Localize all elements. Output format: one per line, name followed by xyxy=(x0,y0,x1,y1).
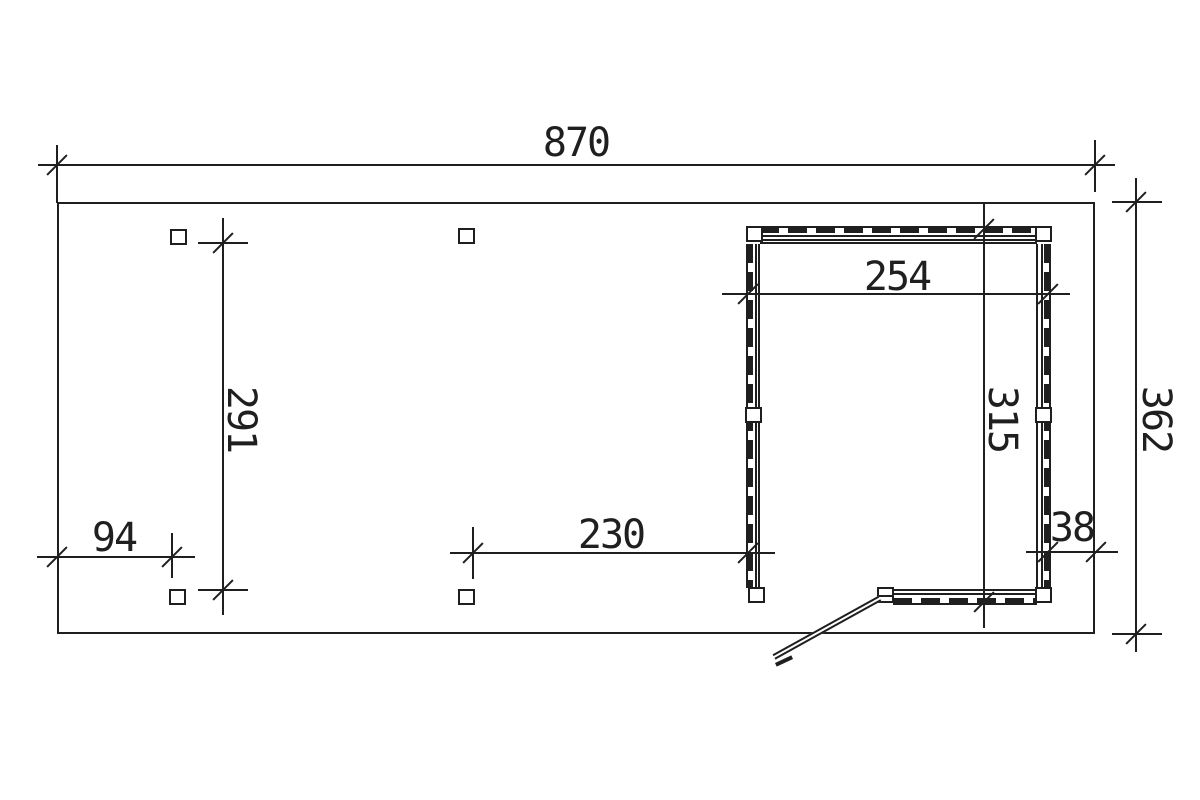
dim-label-362: 362 xyxy=(1140,383,1172,455)
dim-label-254: 254 xyxy=(861,261,933,293)
door-hinge-post-divider xyxy=(879,595,892,597)
carport-post-top-mid xyxy=(458,228,475,244)
room-wall-bottom xyxy=(893,589,1037,605)
dim-label-94: 94 xyxy=(90,522,138,554)
dim-line xyxy=(1026,551,1118,553)
plan-outline xyxy=(57,202,1095,634)
dim-label-38: 38 xyxy=(1048,512,1096,544)
room-post-top-right xyxy=(1035,226,1052,242)
dim-label-870: 870 xyxy=(540,127,612,159)
carport-post-bottom-mid xyxy=(458,589,475,605)
room-post-bottom-right xyxy=(1035,587,1052,603)
dim-label-291: 291 xyxy=(225,383,257,455)
room-post-top-left xyxy=(746,226,763,242)
carport-post-top-left xyxy=(170,229,187,245)
dim-label-315: 315 xyxy=(986,383,1018,455)
room-post-mid-left xyxy=(745,407,762,423)
carport-post-bottom-left xyxy=(169,589,186,605)
floor-plan-canvas: 870 362 291 94 230 254 xyxy=(0,0,1200,800)
dim-extension-line xyxy=(56,145,58,203)
room-post-mid-right xyxy=(1035,407,1052,423)
room-post-bottom-left xyxy=(748,587,765,603)
room-wall-top xyxy=(760,226,1037,244)
dim-label-230: 230 xyxy=(575,519,647,551)
